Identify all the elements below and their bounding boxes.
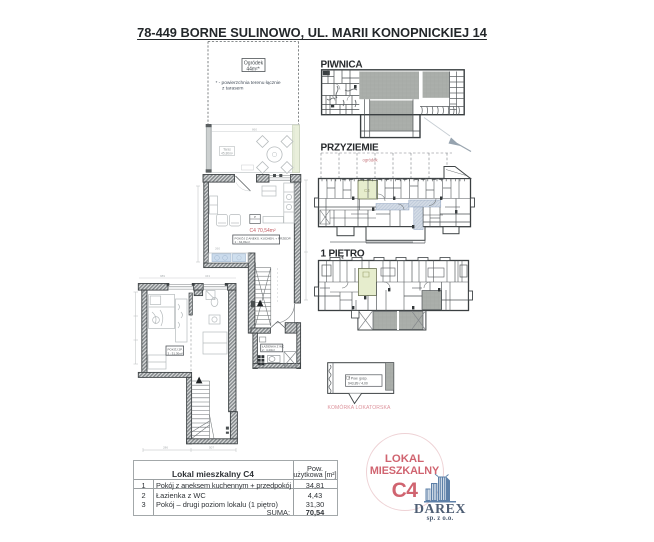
svg-text:P: P: [254, 215, 256, 219]
svg-text:989: 989: [160, 274, 165, 278]
svg-text:C4 70,54m²: C4 70,54m²: [250, 228, 276, 234]
svg-text:3 : 31,30m²: 3 : 31,30m²: [168, 351, 183, 355]
svg-text:PIWNICA: PIWNICA: [321, 60, 363, 71]
svg-text:943,89 / 4,00: 943,89 / 4,00: [348, 382, 368, 386]
svg-text:286: 286: [163, 446, 168, 450]
svg-text:44m²*: 44m²*: [246, 66, 259, 72]
svg-text:860: 860: [252, 128, 257, 132]
svg-text:C4: C4: [364, 188, 370, 193]
svg-text:1 : 34,81m²: 1 : 34,81m²: [235, 240, 251, 244]
svg-text:* - powierzchnia terenu łączni: * - powierzchnia terenu łącznie: [216, 80, 281, 86]
svg-text:KOMÓRKA LOKATORSKA: KOMÓRKA LOKATORSKA: [328, 404, 392, 411]
svg-text:1294: 1294: [297, 217, 301, 224]
svg-text:2 : 4,43m²: 2 : 4,43m²: [262, 348, 275, 352]
svg-text:260: 260: [215, 247, 220, 251]
svg-text:ogródek: ogródek: [363, 158, 379, 163]
svg-text:7 Pow. gosp.: 7 Pow. gosp.: [348, 377, 367, 381]
svg-text:45,80m²: 45,80m²: [221, 152, 233, 156]
svg-text:343: 343: [205, 274, 210, 278]
svg-text:PRZYZIEMIE: PRZYZIEMIE: [321, 143, 380, 154]
svg-text:z tarasem: z tarasem: [222, 86, 243, 92]
svg-text:507: 507: [209, 446, 214, 450]
